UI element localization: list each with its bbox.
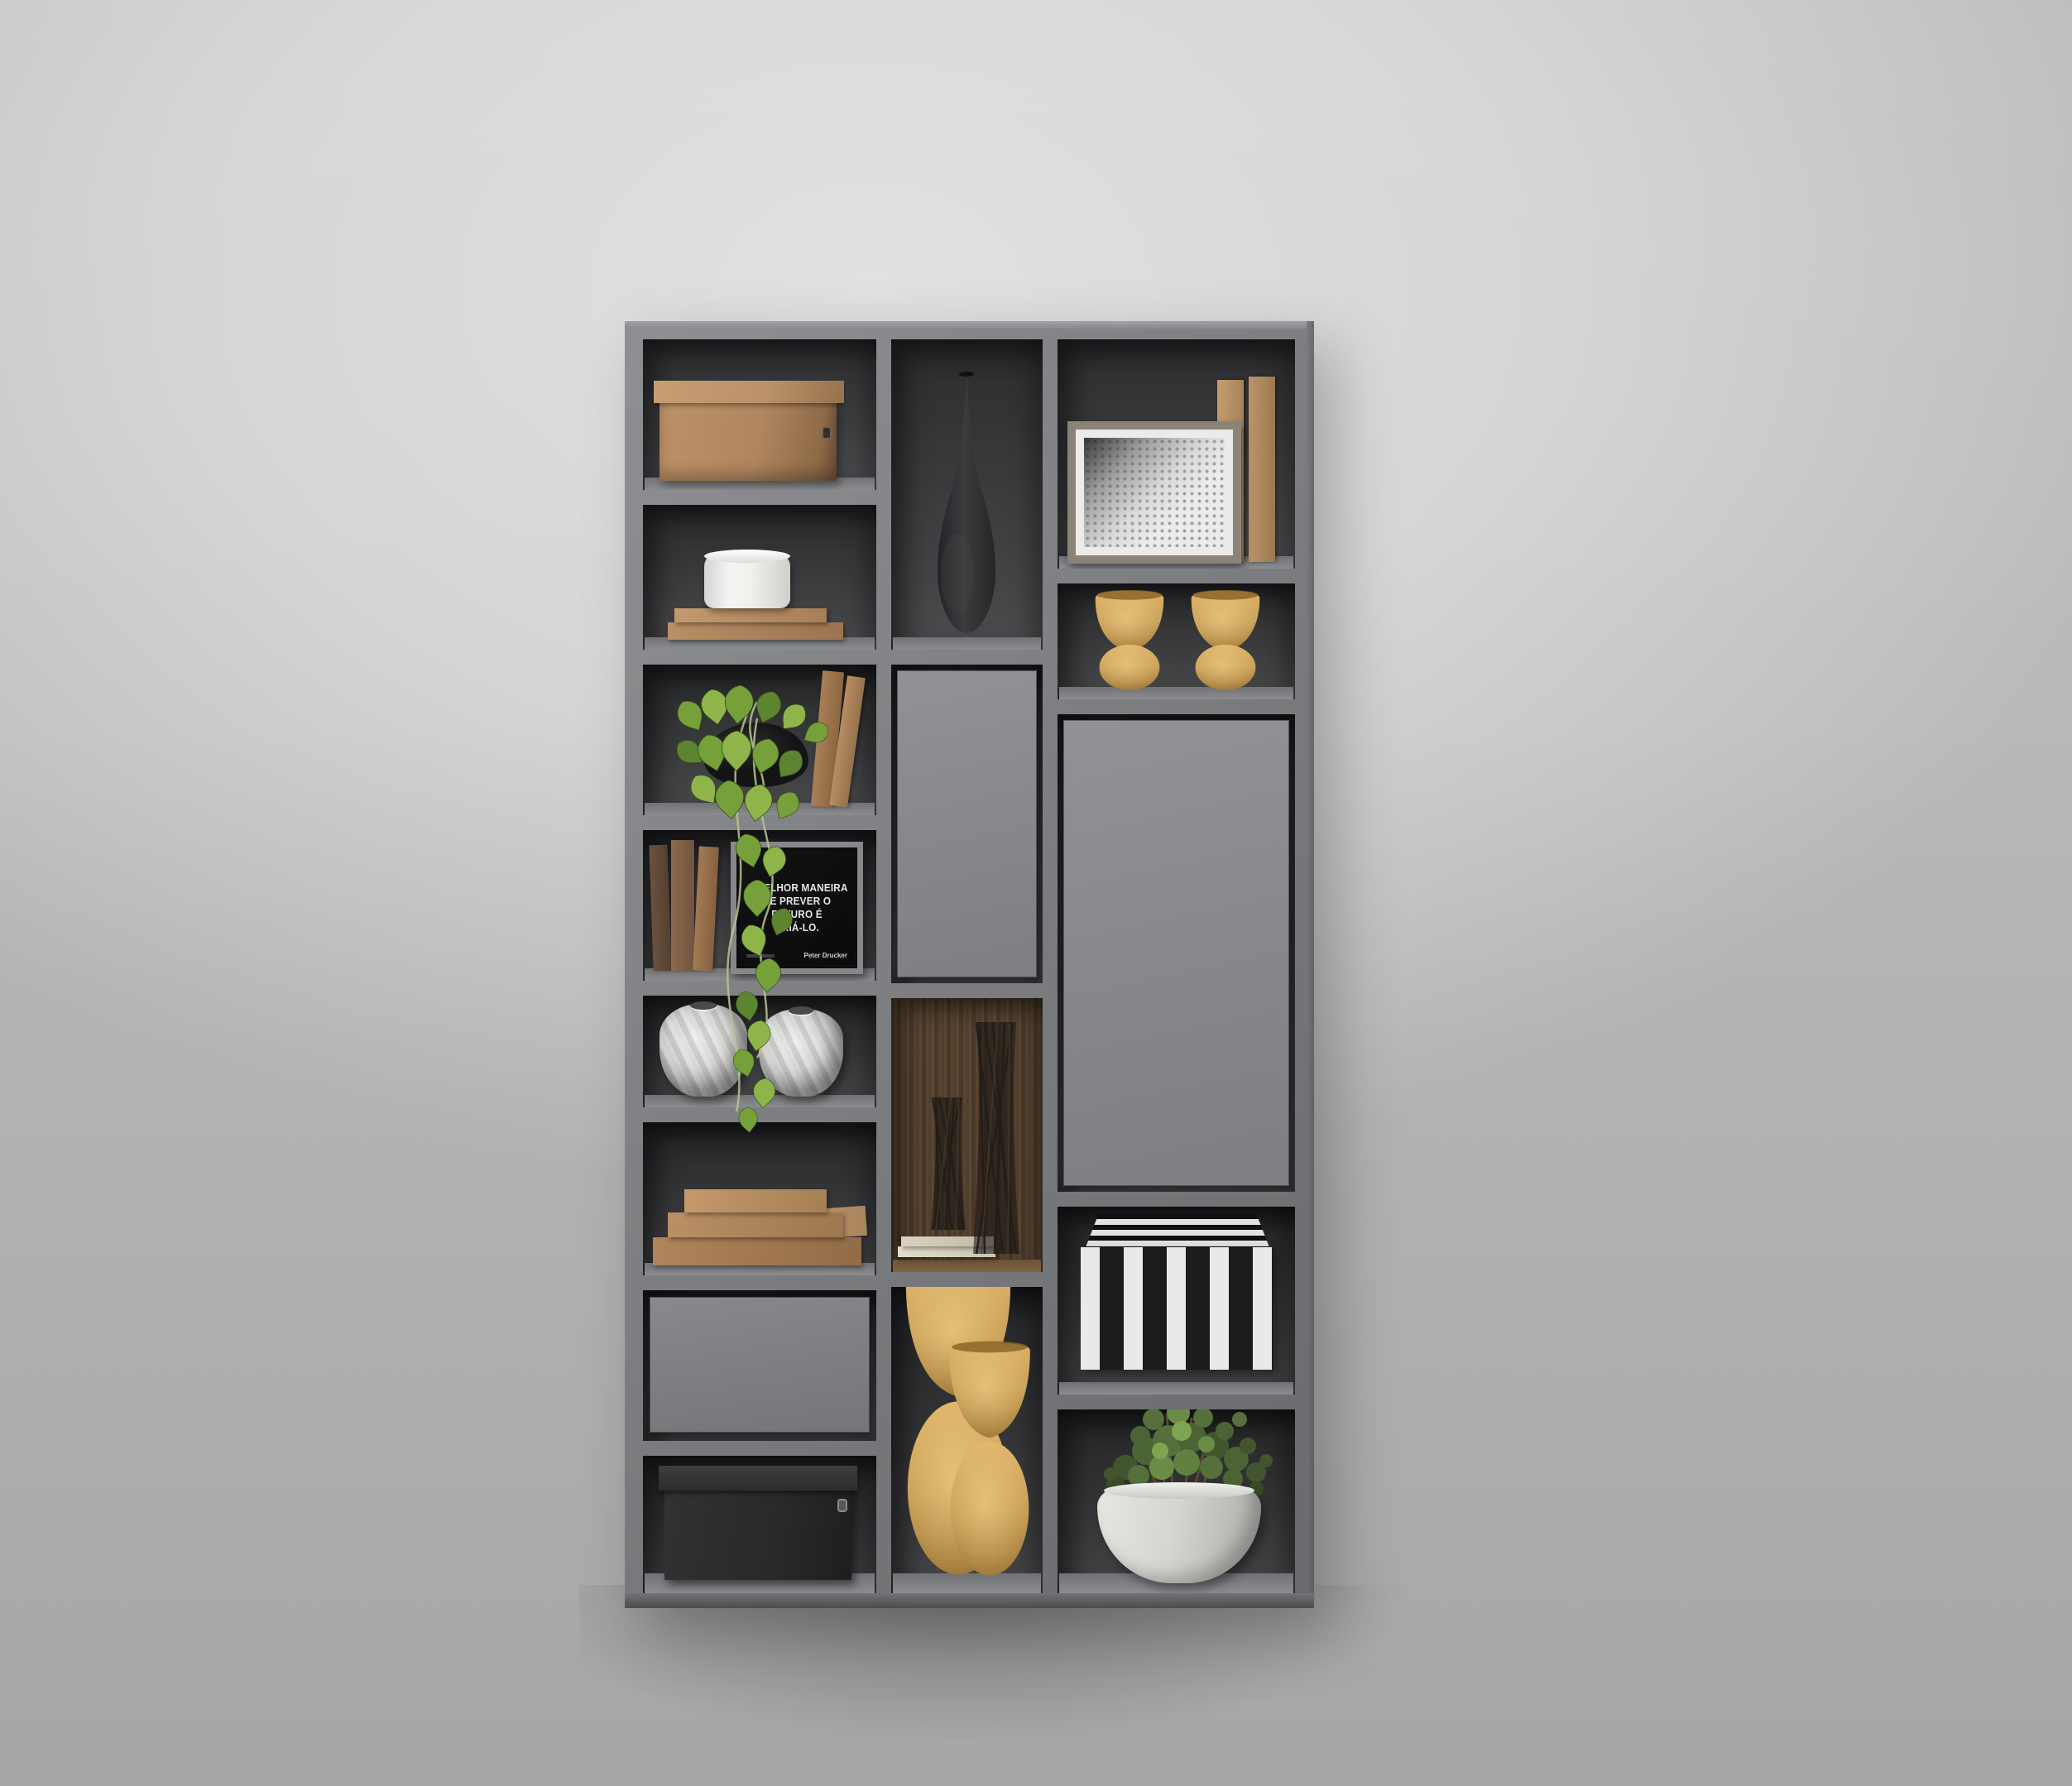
shelving-unit: A MELHOR MANEIRA DE PREVER O FUTURO É CR… (625, 321, 1314, 1608)
compartment-quote: A MELHOR MANEIRA DE PREVER O FUTURO É CR… (643, 830, 876, 981)
leather-box (659, 403, 837, 481)
quote-text: A MELHOR MANEIRA DE PREVER O FUTURO É CR… (743, 881, 851, 935)
stacked-book-small (684, 1189, 827, 1212)
black-box (664, 1486, 851, 1580)
compartment-bottle-vase (891, 339, 1043, 650)
box-label-holder (837, 1499, 847, 1512)
shelf-bottom-edge (625, 1593, 1314, 1608)
stacked-book-medium (668, 1212, 843, 1237)
standing-book (649, 845, 671, 972)
compartment-round-box (643, 505, 876, 650)
twig-vase-tall (958, 1015, 1034, 1260)
swirl-vase (759, 1009, 843, 1097)
shelf-right-edge (1307, 321, 1314, 1608)
standing-book (671, 840, 694, 971)
shelf-cast-shadow (579, 1585, 1407, 1742)
striped-box (1081, 1247, 1273, 1370)
compartment-artwork (1058, 339, 1295, 569)
vertical-book (1249, 377, 1275, 562)
compartment-gold-vases (891, 1287, 1043, 1593)
wall-background: A MELHOR MANEIRA DE PREVER O FUTURO É CR… (0, 0, 2072, 1786)
drawer-front (650, 1297, 870, 1433)
compartment-plant (643, 665, 876, 815)
compartment-book-stack (643, 1122, 876, 1275)
compartment-white-vases (643, 996, 876, 1107)
black-teardrop-vase (914, 367, 1019, 640)
compartment-shrub (1058, 1409, 1295, 1593)
gold-goblet (1087, 587, 1172, 691)
flat-book (674, 608, 827, 622)
compartment-wood-niche (891, 998, 1043, 1272)
standing-book (693, 846, 719, 971)
box-grommet (822, 426, 832, 439)
compartment-tall-door (1058, 714, 1295, 1192)
compartment-black-box (643, 1456, 876, 1593)
swirl-vase (659, 1004, 747, 1097)
gold-goblet (1183, 587, 1268, 691)
compartment-goblets (1058, 583, 1295, 699)
stacked-book-large (653, 1237, 861, 1265)
middle-cabinet-door (897, 670, 1037, 977)
flat-book (668, 622, 843, 640)
compartment-leather-box (643, 339, 876, 490)
striped-box-lid-top (1086, 1214, 1269, 1247)
gold-vase-small (942, 1337, 1038, 1578)
quote-attribution: Peter Drucker (804, 952, 847, 959)
white-plant-pot (1097, 1487, 1261, 1583)
black-box-lid (659, 1466, 857, 1491)
leather-box-lid (654, 381, 844, 403)
tall-cabinet-door (1063, 720, 1289, 1186)
shelf-floor (645, 1095, 875, 1107)
dot-art-shading (1084, 438, 1225, 547)
quote-artwork: A MELHOR MANEIRA DE PREVER O FUTURO É CR… (740, 851, 854, 965)
quote-picture-frame: A MELHOR MANEIRA DE PREVER O FUTURO É CR… (731, 842, 863, 974)
quote-watermark (746, 954, 775, 958)
compartment-striped-box (1058, 1207, 1295, 1395)
plant-pot-black (704, 723, 808, 787)
niche-floor (893, 1260, 1041, 1272)
compartment-middle-door (891, 665, 1043, 983)
shelf-floor (1059, 1382, 1293, 1395)
shelf-top-edge (625, 321, 1314, 329)
compartment-drawer (643, 1290, 876, 1441)
dot-art-frame (1067, 421, 1241, 564)
white-round-box (704, 555, 790, 608)
